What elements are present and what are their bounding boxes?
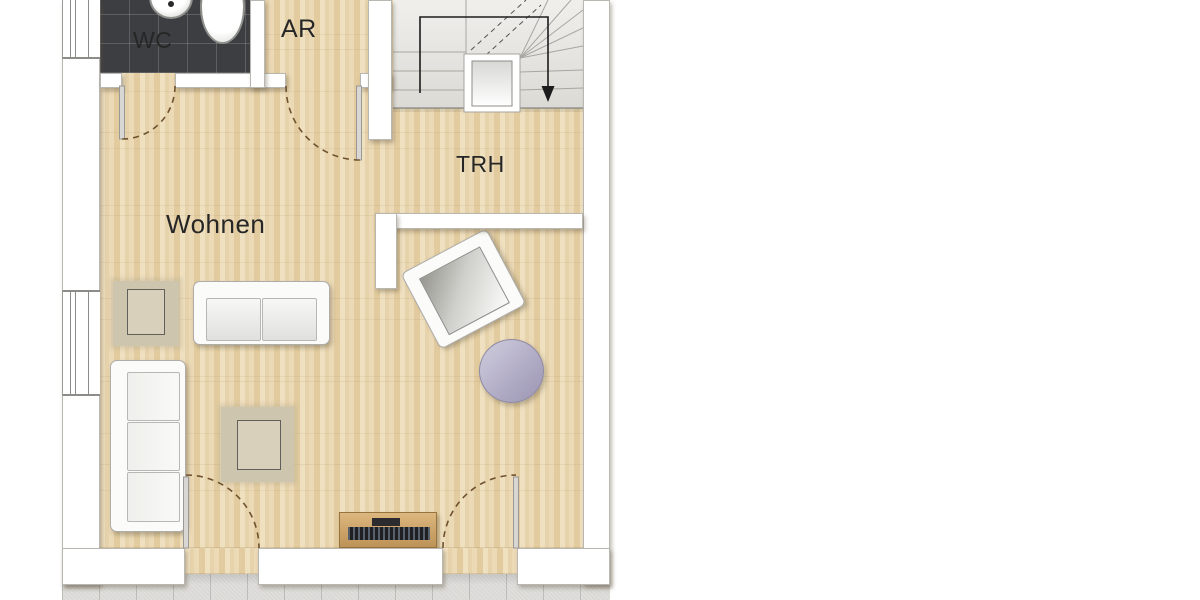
floor-plan-page: WC AR TRH Wohnen [0,0,1200,600]
room-label-wohnen: Wohnen [166,209,265,240]
door-arc-ar [286,86,360,160]
door-arc-terrace-right [443,475,516,548]
door-leaf-terrace-left [184,477,189,548]
door-swings [0,0,1200,600]
room-label-wc: WC [133,27,172,54]
door-arc-wc [122,86,175,139]
room-label-ar: AR [281,15,317,44]
door-arc-terrace-left [186,475,259,548]
door-leaf-terrace-right [514,477,519,548]
door-leaf-wc [120,86,125,139]
door-leaf-ar [357,86,362,160]
room-label-trh: TRH [456,151,505,178]
